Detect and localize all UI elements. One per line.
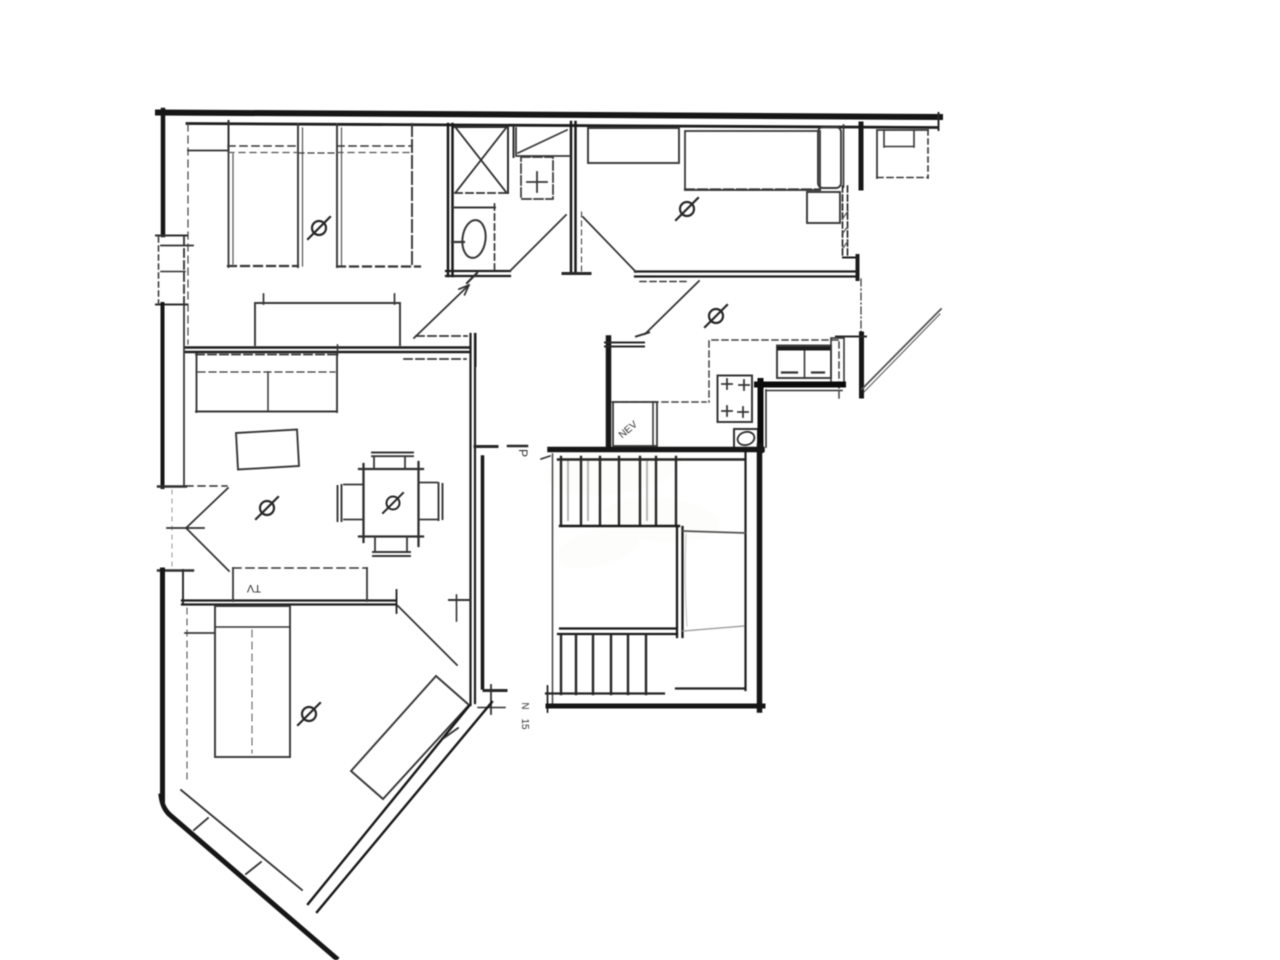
svg-text:TV: TV [246, 582, 261, 594]
svg-text:N: N [519, 702, 530, 709]
svg-text:NEV: NEV [617, 419, 640, 441]
svg-text:P: P [516, 449, 530, 457]
svg-text:15: 15 [519, 718, 530, 730]
